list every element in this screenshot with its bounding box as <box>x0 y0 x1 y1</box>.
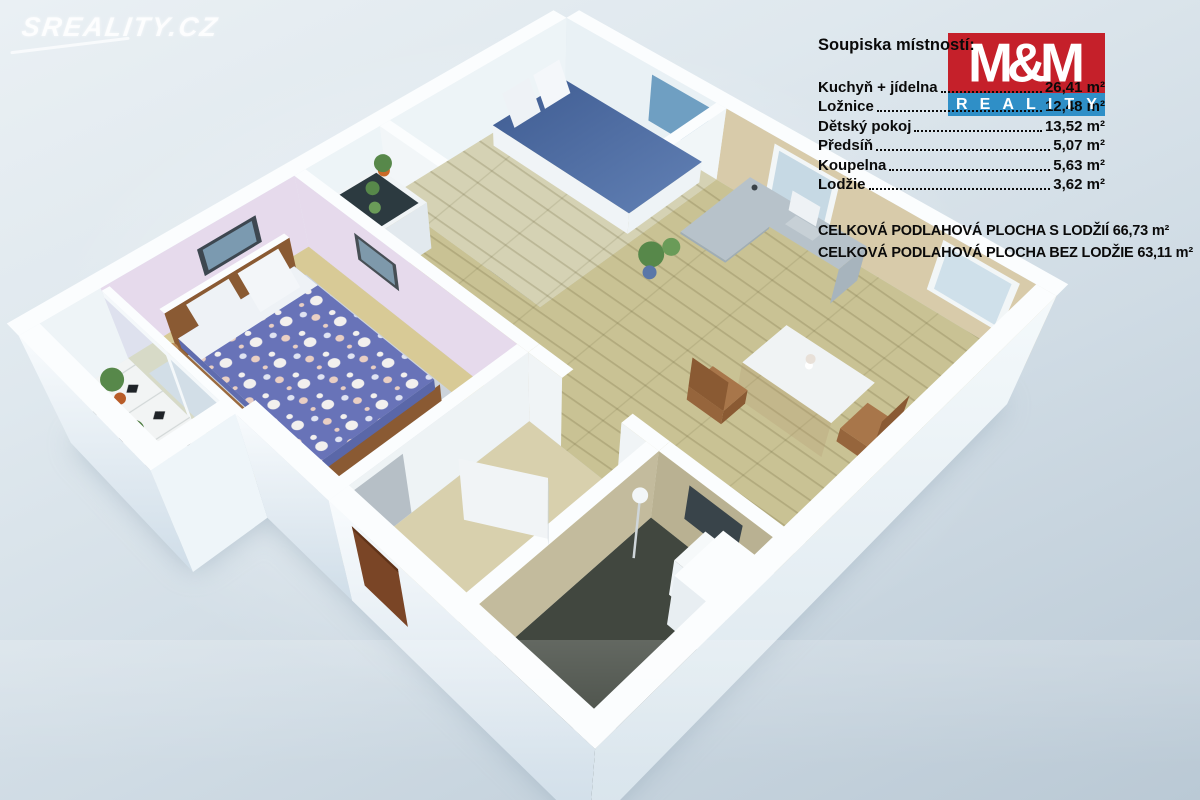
room-area-row: Kuchyň + jídelna26,41 m² <box>818 76 1105 96</box>
room-list-totals: CELKOVÁ PODLAHOVÁ PLOCHA S LODŽIÍ 66,73 … <box>818 220 1105 264</box>
kitchen-plant <box>662 238 680 256</box>
room-list-rows: Kuchyň + jídelna26,41 m²Ložnice12,48 m²D… <box>818 76 1105 193</box>
room-area-row: Koupelna5,63 m² <box>818 154 1105 174</box>
room-area-row: Ložnice12,48 m² <box>818 96 1105 116</box>
room-label: Kuchyň + jídelna <box>818 79 938 96</box>
room-area-row: Předsíň5,07 m² <box>818 135 1105 155</box>
dot-leader <box>869 188 1051 190</box>
room-label: Ložnice <box>818 98 874 115</box>
shelf-plant <box>366 181 380 195</box>
dot-leader <box>889 169 1050 171</box>
kitchen-plant <box>638 241 664 267</box>
room-area-value: 5,63 m² <box>1053 157 1105 174</box>
room-list-panel: Soupiska místností: Kuchyň + jídelna26,4… <box>818 36 1105 264</box>
room-label: Předsíň <box>818 137 873 154</box>
room-area-value: 12,48 m² <box>1045 98 1105 115</box>
room-list-title: Soupiska místností: <box>818 36 1105 55</box>
desk-speaker <box>752 184 758 190</box>
kitchen-plant-pot <box>643 265 657 279</box>
room-area-value: 26,41 m² <box>1045 79 1105 96</box>
vase-flowers <box>806 354 816 364</box>
flower-pot-plant <box>374 154 392 172</box>
room-label: Koupelna <box>818 157 886 174</box>
floor-reflection <box>0 640 1200 800</box>
room-area-row: Dětský pokoj13,52 m² <box>818 115 1105 135</box>
shower-head <box>632 487 648 503</box>
dot-leader <box>877 110 1042 112</box>
room-label: Lodžie <box>818 176 866 193</box>
dot-leader <box>941 91 1042 93</box>
shelf-plant <box>369 202 381 214</box>
dot-leader <box>914 130 1042 132</box>
total-area-line: CELKOVÁ PODLAHOVÁ PLOCHA S LODŽIÍ 66,73 … <box>818 220 1105 242</box>
room-area-value: 3,62 m² <box>1053 176 1105 193</box>
total-area-line: CELKOVÁ PODLAHOVÁ PLOCHA BEZ LODŽIE 63,1… <box>818 242 1105 264</box>
room-area-row: Lodžie3,62 m² <box>818 174 1105 194</box>
dot-leader <box>876 149 1050 151</box>
room-area-value: 13,52 m² <box>1045 118 1105 135</box>
room-area-value: 5,07 m² <box>1053 137 1105 154</box>
room-label: Dětský pokoj <box>818 118 911 135</box>
